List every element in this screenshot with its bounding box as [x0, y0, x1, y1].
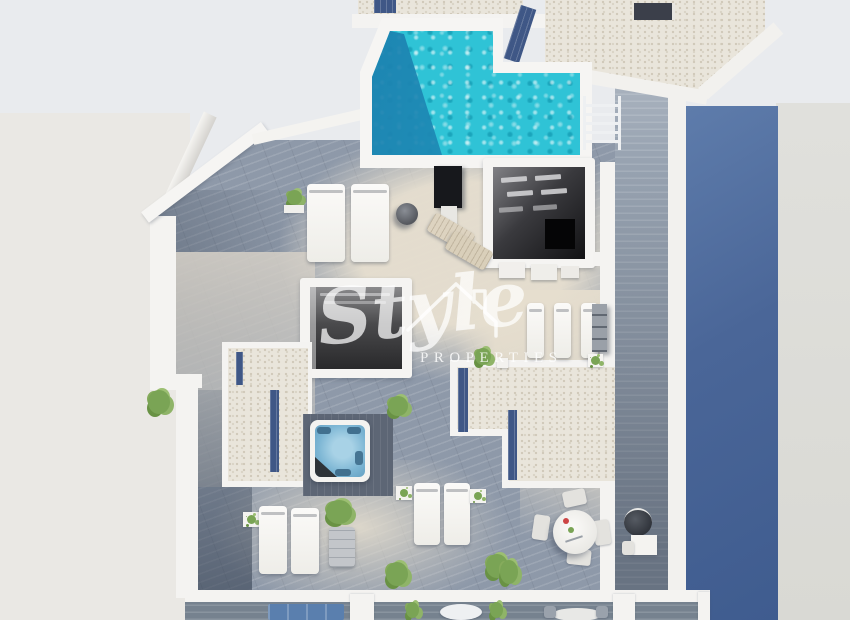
hot-tub: [310, 420, 370, 482]
balcony-table-2: [552, 608, 602, 620]
planter-tray: [284, 205, 304, 213]
plant-center: [475, 348, 491, 365]
hot-tub-seat: [317, 427, 331, 434]
balcony-table-1: [440, 604, 482, 620]
plant-balcony-2: [490, 602, 503, 618]
shower-panel: [434, 166, 462, 208]
solar-panel-top: [374, 0, 396, 13]
round-planter: [624, 508, 652, 536]
terrace-wall-top: [593, 252, 615, 266]
hot-tub-seat: [347, 427, 361, 434]
hot-tub-seat: [335, 469, 351, 476]
balcony-chair-2: [596, 606, 608, 618]
gravel-roof-center-surface: [457, 367, 615, 481]
skylight-void-lower-interior: [310, 287, 402, 369]
sun-lounger-bl-1: [259, 506, 287, 574]
plant-wall-left: [148, 390, 170, 414]
building-wall-left-lower: [176, 380, 198, 598]
solar-strip-left-a: [236, 352, 243, 385]
ac-unit-3: [561, 266, 579, 278]
sun-lounger-bl-2: [291, 508, 319, 574]
ac-unit-1: [499, 262, 525, 278]
neighbor-wall-right-strip: [776, 103, 850, 620]
ac-unit-2: [531, 264, 557, 280]
plant-right-terrace: [591, 356, 600, 365]
sun-lounger-bm-2: [444, 483, 470, 545]
roof-vent-dark: [634, 3, 675, 20]
stair-step: [586, 122, 618, 125]
facade-blue-right: [686, 106, 778, 620]
skylight-void-upper: [483, 158, 595, 268]
sun-lounger-pool-2: [351, 184, 389, 262]
plate-red: [563, 518, 569, 524]
gravel-roof-center: [450, 360, 615, 488]
sun-lounger-right-2: [554, 303, 571, 358]
shelf-unit: [592, 304, 607, 352]
plant-side-table-bl: [247, 515, 256, 524]
balcony-divider-2: [613, 594, 635, 620]
patio-desk: [631, 535, 657, 555]
building-wall-left-upper: [150, 216, 176, 390]
sun-lounger-pool-1: [307, 184, 345, 262]
cutlery: [565, 535, 583, 542]
balcony-chair-1: [544, 606, 556, 618]
plant-bl-large: [326, 500, 352, 524]
balcony-divider-3: [698, 592, 710, 620]
desk-chair: [622, 541, 634, 555]
dining-table: [553, 510, 597, 554]
balcony-sofa-blue: [268, 604, 344, 620]
sun-lounger-right-1: [527, 303, 544, 358]
hot-tub-water: [315, 425, 365, 477]
stairs: [583, 96, 621, 150]
plant-hot-tub: [388, 396, 408, 416]
hot-tub-cover-corner: [315, 457, 337, 477]
dining-chair-left: [531, 514, 550, 541]
solar-strip-center-b: [508, 410, 517, 480]
plant-balcony-1: [406, 602, 419, 618]
plate-green: [568, 527, 574, 533]
plant-bm-table-1: [400, 489, 408, 497]
building-wall-diagonal-2: [252, 108, 366, 144]
solar-strip-center-a: [458, 368, 468, 432]
void-dark-corner: [545, 219, 575, 249]
sun-lounger-bm-1: [414, 483, 440, 545]
plant-pool-terrace: [287, 190, 302, 205]
stair-step: [586, 131, 618, 134]
plant-bm-floor-1: [386, 562, 408, 586]
round-side-table: [396, 203, 418, 225]
armchair-gray: [329, 527, 355, 567]
plant-br-floor: [500, 560, 518, 584]
building-wall-step: [150, 374, 202, 388]
hot-tub-seat: [355, 451, 363, 465]
pot-center: [497, 358, 508, 368]
stair-step: [586, 113, 618, 116]
solar-strip-left-b: [270, 390, 279, 472]
plant-bm-table-2: [474, 492, 482, 500]
skylight-void-upper-interior: [493, 167, 585, 259]
right-wall-band: [668, 98, 686, 620]
stair-step: [586, 104, 618, 107]
stair-rail-right: [618, 96, 621, 150]
stair-step: [586, 140, 618, 143]
render-canvas: Style PROPERTIES: [0, 0, 850, 620]
balcony-divider-1: [350, 594, 374, 620]
